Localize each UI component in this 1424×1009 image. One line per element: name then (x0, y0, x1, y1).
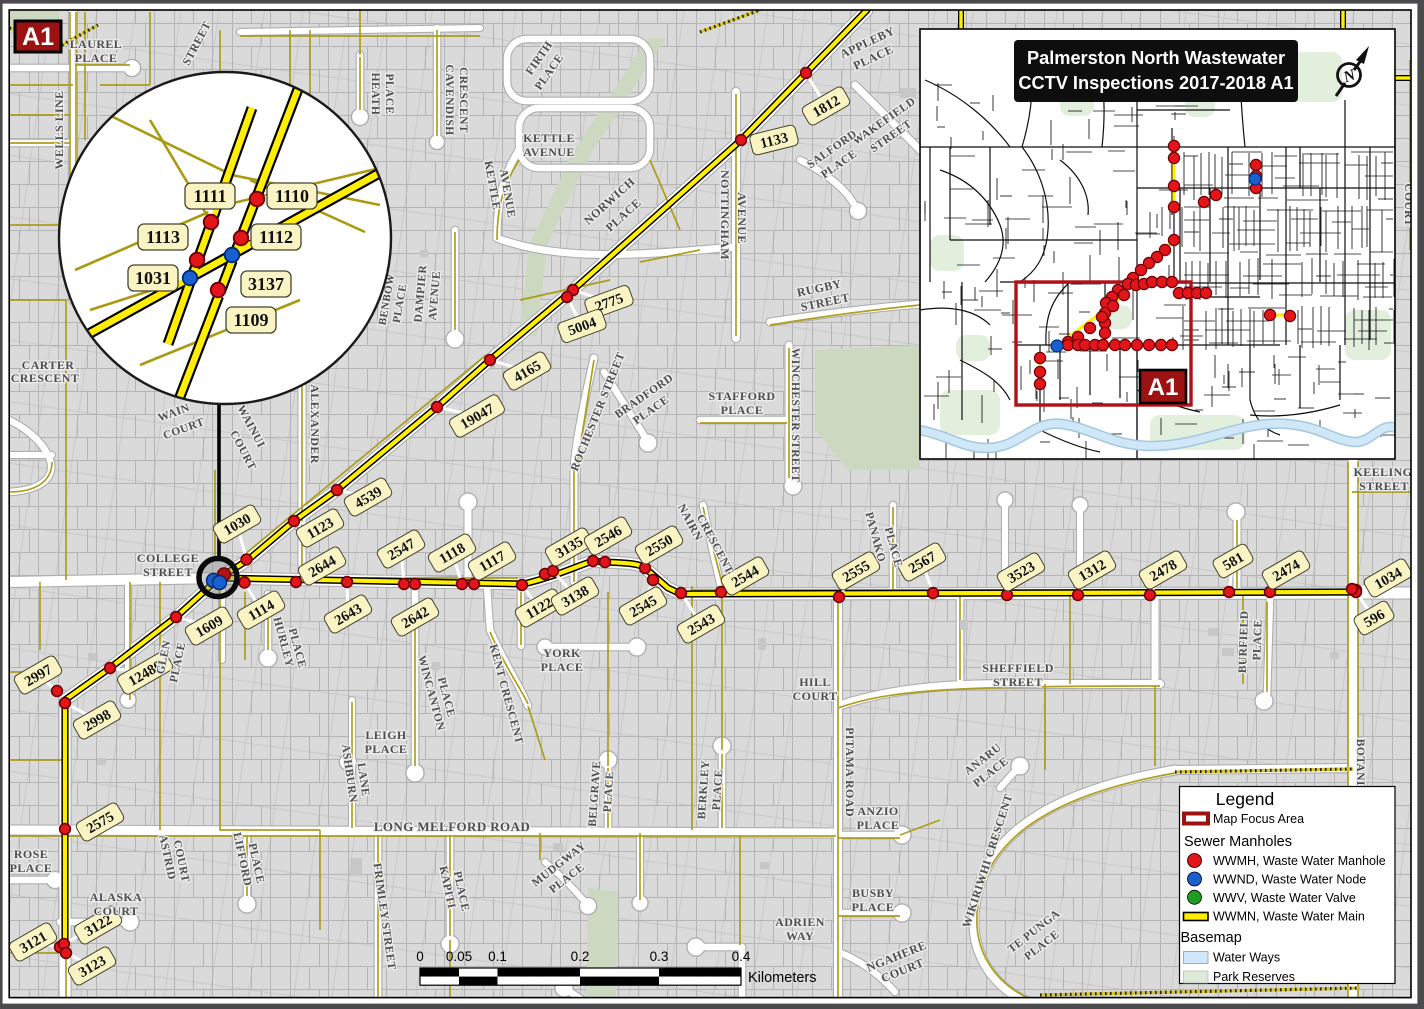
svg-text:WWMH, Waste Water Manhole: WWMH, Waste Water Manhole (1213, 854, 1386, 868)
svg-text:1113: 1113 (146, 227, 180, 247)
svg-text:PLACE: PLACE (857, 818, 900, 832)
svg-text:0: 0 (416, 949, 424, 964)
svg-text:PLACE: PLACE (383, 74, 395, 115)
svg-text:KETTLE: KETTLE (523, 131, 575, 145)
svg-text:CAVENDISH: CAVENDISH (443, 64, 455, 135)
svg-text:Water Ways: Water Ways (1213, 951, 1280, 965)
svg-text:ANZIO: ANZIO (857, 804, 898, 818)
svg-text:LAUREL: LAUREL (70, 37, 122, 51)
svg-text:WWV, Waste Water Valve: WWV, Waste Water Valve (1213, 891, 1356, 905)
svg-text:Park Reserves: Park Reserves (1213, 970, 1295, 984)
svg-text:STREET: STREET (993, 675, 1043, 689)
svg-text:BUSBY: BUSBY (852, 886, 894, 900)
svg-text:PLACE: PLACE (1251, 619, 1264, 660)
svg-text:CRESCENT: CRESCENT (457, 67, 469, 133)
svg-text:LEIGH: LEIGH (365, 728, 407, 742)
svg-text:COURT: COURT (793, 689, 838, 703)
svg-text:COURT: COURT (94, 904, 139, 918)
svg-text:WWMN, Waste Water Main: WWMN, Waste Water Main (1213, 910, 1365, 924)
svg-text:HILL: HILL (799, 675, 831, 689)
svg-text:3137: 3137 (248, 274, 284, 294)
svg-text:CCTV Inspections 2017-2018 A1: CCTV Inspections 2017-2018 A1 (1018, 73, 1293, 93)
svg-text:0.05: 0.05 (446, 949, 472, 964)
svg-text:PITAMA ROAD: PITAMA ROAD (843, 727, 857, 817)
svg-text:STREET: STREET (143, 565, 193, 579)
svg-text:Basemap: Basemap (1181, 930, 1242, 946)
svg-text:PLACE: PLACE (365, 742, 408, 756)
svg-text:CRESCENT: CRESCENT (11, 371, 80, 385)
svg-text:NOTTINGHAM: NOTTINGHAM (718, 170, 732, 260)
svg-text:ALASKA: ALASKA (90, 890, 142, 904)
svg-text:1111: 1111 (193, 186, 226, 206)
svg-text:AVENUE: AVENUE (523, 145, 575, 159)
svg-text:HEATH: HEATH (369, 73, 381, 116)
svg-text:KEELING: KEELING (1354, 465, 1413, 479)
svg-text:PLACE: PLACE (10, 861, 53, 875)
svg-text:WWND, Waste Water Node: WWND, Waste Water Node (1213, 873, 1366, 887)
svg-text:0.2: 0.2 (571, 949, 590, 964)
svg-text:AVENUE: AVENUE (735, 192, 749, 244)
svg-text:A1: A1 (22, 23, 54, 51)
svg-text:WAY: WAY (786, 929, 814, 943)
svg-text:ADRIEN: ADRIEN (775, 915, 825, 929)
svg-text:0.3: 0.3 (650, 949, 669, 964)
svg-text:CARTER: CARTER (22, 358, 75, 372)
svg-text:WINCHESTER STREET: WINCHESTER STREET (789, 348, 801, 482)
svg-text:PLACE: PLACE (721, 403, 764, 417)
svg-text:0.1: 0.1 (488, 949, 507, 964)
svg-text:1110: 1110 (275, 186, 309, 206)
svg-text:LONG MELFORD ROAD: LONG MELFORD ROAD (374, 819, 530, 834)
svg-text:Sewer Manholes: Sewer Manholes (1184, 834, 1292, 850)
svg-text:SHEFFIELD: SHEFFIELD (982, 661, 1054, 675)
svg-text:ROSE: ROSE (14, 847, 48, 861)
svg-text:STAFFORD: STAFFORD (709, 389, 776, 403)
svg-text:PLACE: PLACE (75, 51, 118, 65)
svg-text:1031: 1031 (135, 268, 171, 288)
svg-text:PLACE: PLACE (852, 900, 895, 914)
svg-text:1112: 1112 (259, 227, 293, 247)
svg-text:Map Focus Area: Map Focus Area (1213, 812, 1304, 826)
svg-text:1109: 1109 (233, 310, 268, 330)
svg-text:Kilometers: Kilometers (748, 970, 817, 986)
svg-text:ALEXANDER: ALEXANDER (308, 384, 322, 464)
svg-text:STREET: STREET (1359, 479, 1409, 493)
svg-text:WELLS LINE: WELLS LINE (52, 90, 66, 169)
svg-text:YORK: YORK (543, 646, 581, 660)
svg-text:COLLEGE: COLLEGE (137, 551, 199, 565)
svg-text:PLACE: PLACE (541, 660, 584, 674)
svg-text:BURFIELD: BURFIELD (1237, 610, 1251, 673)
svg-text:Legend: Legend (1216, 789, 1274, 809)
svg-text:0.4: 0.4 (732, 949, 751, 964)
svg-text:A1: A1 (1148, 374, 1179, 401)
svg-text:Palmerston North Wastewater: Palmerston North Wastewater (1027, 48, 1285, 68)
